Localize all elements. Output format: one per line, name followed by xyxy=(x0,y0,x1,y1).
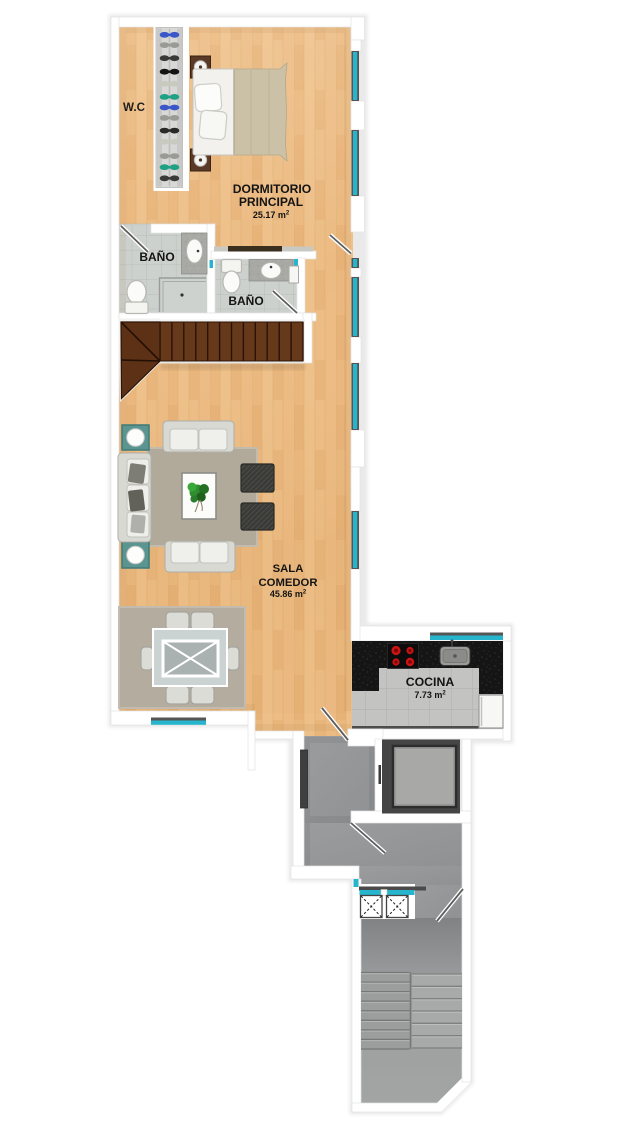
svg-text:PRINCIPAL: PRINCIPAL xyxy=(239,195,304,209)
svg-text:COMEDOR: COMEDOR xyxy=(259,577,318,589)
svg-text:25.17 m2: 25.17 m2 xyxy=(253,210,290,220)
svg-text:COCINA: COCINA xyxy=(406,675,455,689)
svg-text:BAÑO: BAÑO xyxy=(228,293,263,308)
svg-text:45.86 m2: 45.86 m2 xyxy=(270,589,307,599)
svg-text:BAÑO: BAÑO xyxy=(139,249,174,264)
svg-text:DORMITORIO: DORMITORIO xyxy=(233,182,311,196)
svg-text:7.73 m2: 7.73 m2 xyxy=(414,690,446,700)
svg-text:W.C: W.C xyxy=(123,101,146,114)
svg-text:SALA: SALA xyxy=(273,563,304,575)
